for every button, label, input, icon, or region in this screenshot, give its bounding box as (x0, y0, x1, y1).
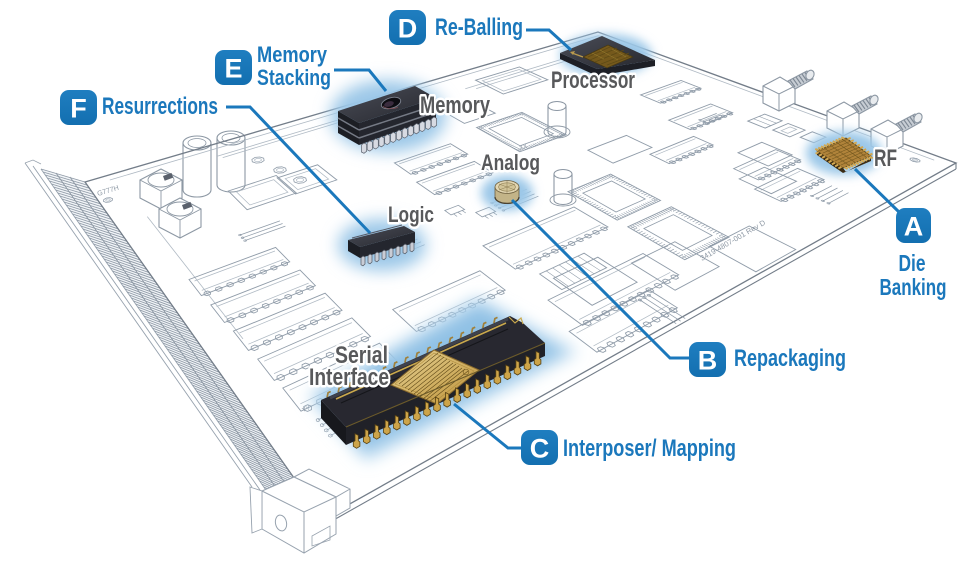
svg-text:B: B (698, 345, 718, 375)
svg-text:Analog: Analog (481, 150, 540, 175)
svg-text:Die: Die (899, 250, 926, 276)
svg-text:Repackaging: Repackaging (734, 345, 846, 372)
svg-text:Processor: Processor (551, 67, 635, 94)
svg-text:Interposer/ Mapping: Interposer/ Mapping (563, 435, 736, 462)
svg-text:C: C (530, 433, 550, 463)
svg-text:F: F (70, 93, 87, 123)
svg-text:Logic: Logic (388, 202, 434, 227)
svg-text:Resurrections: Resurrections (102, 93, 218, 120)
svg-text:Interface: Interface (309, 364, 389, 391)
svg-text:Re-Balling: Re-Balling (435, 14, 523, 41)
svg-text:D: D (398, 13, 418, 43)
svg-text:Memory: Memory (420, 92, 490, 119)
svg-text:E: E (224, 53, 242, 83)
svg-text:Banking: Banking (880, 274, 947, 300)
svg-text:Memory: Memory (257, 42, 328, 67)
svg-text:A: A (904, 211, 924, 241)
svg-text:G777H: G777H (97, 185, 120, 198)
svg-text:RF: RF (874, 145, 897, 172)
svg-text:Stacking: Stacking (257, 65, 331, 90)
svg-text:3419-4807-001 Rev D: 3419-4807-001 Rev D (699, 218, 768, 263)
